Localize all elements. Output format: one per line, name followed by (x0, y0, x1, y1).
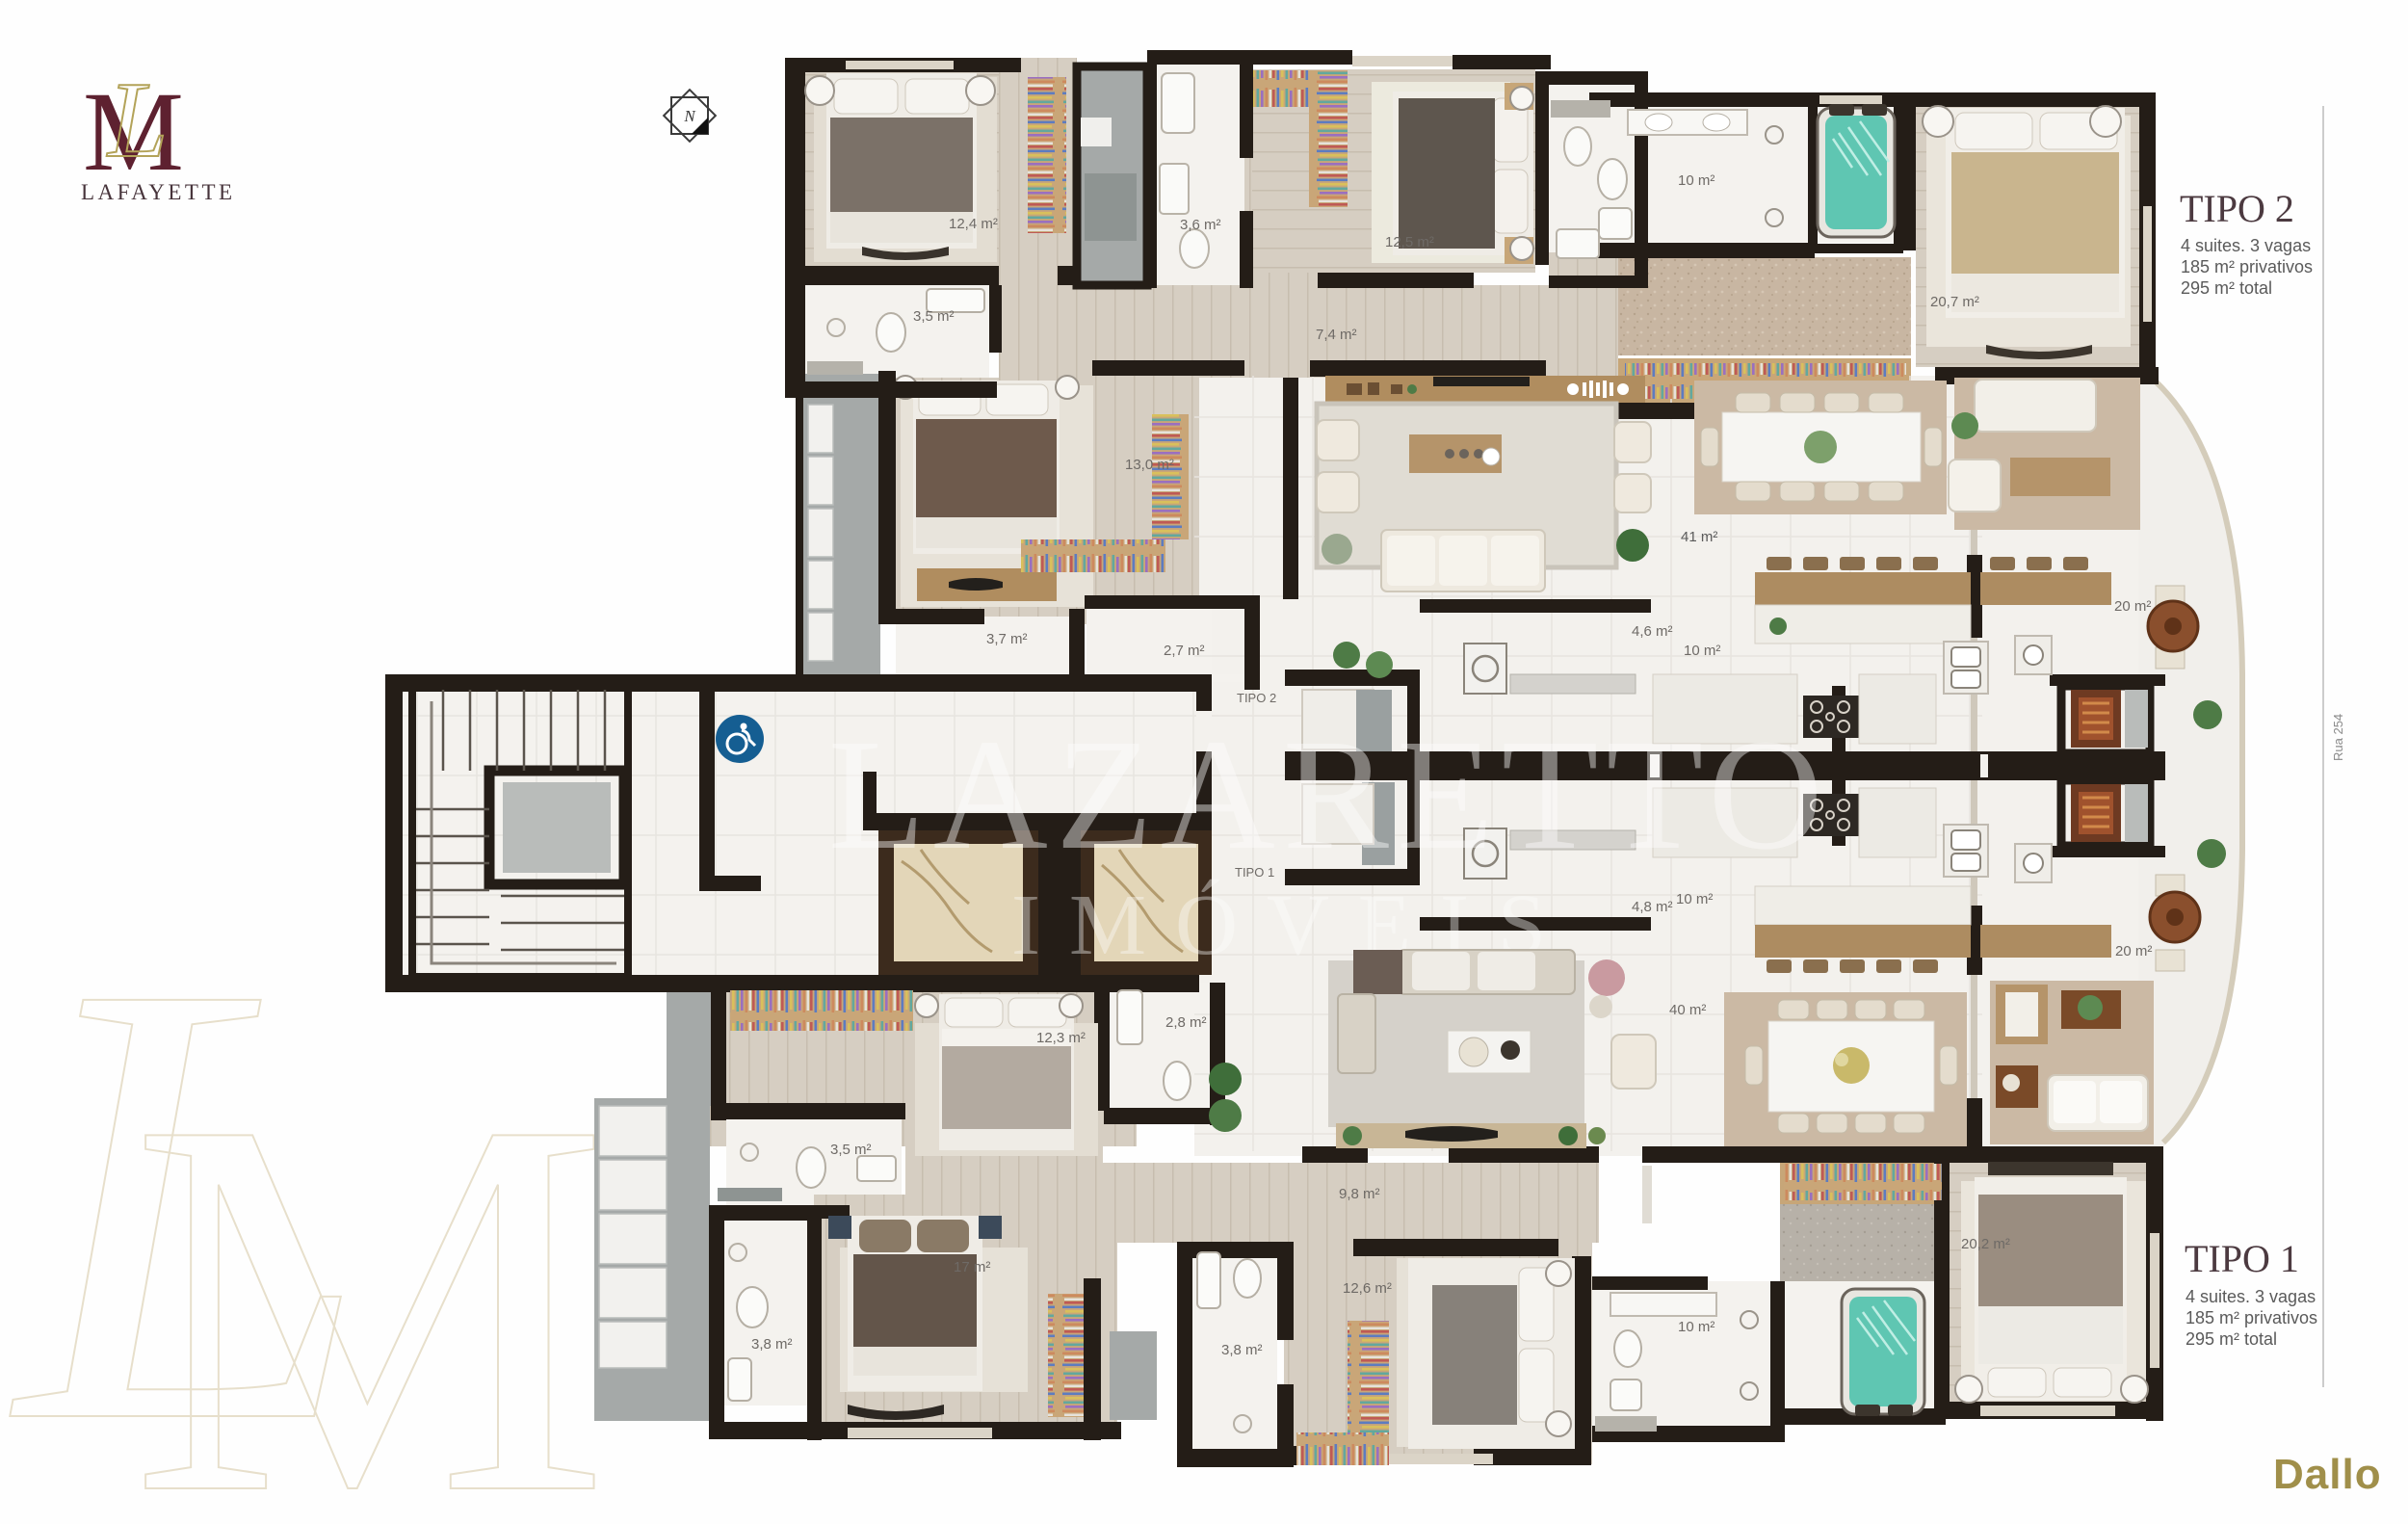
svg-text:20,7 m²: 20,7 m² (1930, 294, 1979, 310)
svg-text:Rua 254: Rua 254 (2331, 714, 2345, 761)
svg-text:20 m²: 20 m² (2115, 943, 2152, 959)
svg-text:TIPO 1: TIPO 1 (2185, 1237, 2299, 1280)
svg-text:2,8 m²: 2,8 m² (1165, 1014, 1207, 1031)
svg-text:20 m²: 20 m² (2114, 598, 2151, 615)
svg-text:7,4 m²: 7,4 m² (1316, 327, 1357, 343)
svg-text:2,7 m²: 2,7 m² (1164, 643, 1205, 659)
svg-text:13,0 m²: 13,0 m² (1125, 457, 1174, 473)
svg-text:3,8 m²: 3,8 m² (751, 1336, 793, 1353)
svg-text:185 m² privativos: 185 m² privativos (2181, 257, 2313, 276)
svg-text:4 suites. 3 vagas: 4 suites. 3 vagas (2181, 236, 2311, 255)
svg-text:12,3 m²: 12,3 m² (1036, 1030, 1086, 1046)
svg-text:10 m²: 10 m² (1678, 1319, 1714, 1335)
svg-text:3,5 m²: 3,5 m² (830, 1142, 872, 1158)
svg-text:12,5 m²: 12,5 m² (1385, 234, 1434, 250)
svg-text:40 m²: 40 m² (1669, 1002, 1706, 1018)
svg-text:3,7 m²: 3,7 m² (986, 631, 1028, 647)
svg-text:TIPO 1: TIPO 1 (1235, 865, 1274, 880)
svg-text:9,8 m²: 9,8 m² (1339, 1186, 1380, 1202)
svg-text:17 m²: 17 m² (954, 1259, 990, 1275)
svg-text:4,6 m²: 4,6 m² (1632, 623, 1673, 640)
svg-text:LAZARETTO: LAZARETTO (828, 706, 1831, 882)
svg-text:LAFAYETTE: LAFAYETTE (81, 180, 236, 204)
svg-text:N: N (683, 107, 696, 125)
svg-text:Dallo: Dallo (2273, 1451, 2382, 1498)
svg-text:3,5 m²: 3,5 m² (913, 308, 955, 325)
svg-text:12,4 m²: 12,4 m² (949, 216, 998, 232)
svg-text:3,6 m²: 3,6 m² (1180, 217, 1221, 233)
svg-text:295 m² total: 295 m² total (2181, 278, 2272, 298)
svg-text:185 m² privativos: 185 m² privativos (2186, 1308, 2317, 1327)
svg-text:TIPO 2: TIPO 2 (1237, 691, 1276, 705)
svg-text:10 m²: 10 m² (1676, 891, 1713, 907)
svg-text:10 m²: 10 m² (1684, 643, 1720, 659)
svg-text:295 m² total: 295 m² total (2186, 1329, 2277, 1349)
svg-text:20,2 m²: 20,2 m² (1961, 1236, 2010, 1252)
svg-text:3,8 m²: 3,8 m² (1221, 1342, 1263, 1358)
svg-text:L: L (106, 61, 168, 180)
svg-text:41 m²: 41 m² (1681, 529, 1717, 545)
svg-text:TIPO 2: TIPO 2 (2180, 187, 2294, 230)
svg-text:12,6 m²: 12,6 m² (1343, 1280, 1392, 1297)
svg-text:4,8 m²: 4,8 m² (1632, 899, 1673, 915)
svg-text:L: L (8, 850, 371, 1524)
svg-text:10 m²: 10 m² (1678, 172, 1714, 189)
svg-text:4 suites. 3 vagas: 4 suites. 3 vagas (2186, 1287, 2316, 1306)
